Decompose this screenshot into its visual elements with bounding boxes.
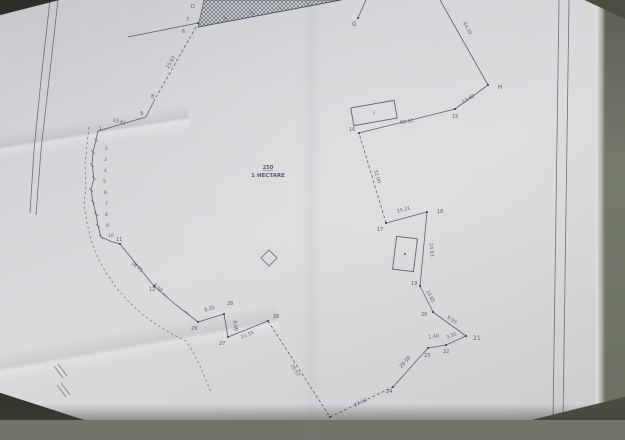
vertex-dot bbox=[385, 222, 387, 224]
vertex-dot bbox=[227, 336, 229, 338]
vertex-dot bbox=[419, 285, 421, 287]
measurement-label: 8.25 bbox=[204, 305, 216, 314]
road-dash-mark bbox=[54, 366, 63, 378]
point-label: 26 bbox=[273, 314, 279, 320]
vertex-dot bbox=[465, 335, 467, 337]
point-label: 4 bbox=[104, 168, 107, 174]
vertex-dot bbox=[487, 84, 489, 86]
point-label: 24 bbox=[386, 389, 392, 395]
road-dash-mark bbox=[57, 385, 66, 397]
vertex-dot bbox=[329, 416, 331, 418]
vertex-dot bbox=[197, 22, 199, 24]
point-label: 5 bbox=[103, 179, 106, 185]
measurement-label: 1.40 bbox=[428, 333, 440, 341]
boundary-segment bbox=[146, 99, 155, 117]
point-label: G bbox=[352, 21, 357, 28]
point-label: 16 bbox=[349, 127, 355, 133]
measurement-label: 28.57 bbox=[289, 363, 302, 378]
measurement-label: 44.20 bbox=[461, 21, 473, 36]
boundary-segment bbox=[128, 23, 198, 37]
measurement-label: 3.35 bbox=[446, 331, 458, 340]
measurement-label: 25.93 bbox=[165, 55, 177, 70]
building-mark bbox=[404, 253, 406, 255]
diamond-symbol bbox=[261, 250, 277, 266]
vertex-dot bbox=[119, 243, 121, 245]
boundary-segment bbox=[224, 314, 228, 337]
boundary-segment bbox=[359, 133, 386, 223]
building-label: I bbox=[373, 111, 376, 117]
survey-plan-drawing: ID7689GH15161718192021222324262728291112… bbox=[0, 0, 625, 420]
measurement-label: 28.58 bbox=[398, 355, 412, 369]
point-label: 9 bbox=[106, 223, 109, 229]
west-dashed-boundary bbox=[84, 127, 211, 392]
measurement-label: 58.52 bbox=[400, 118, 415, 126]
boundary-segment bbox=[268, 321, 330, 417]
point-label: 23 bbox=[424, 353, 430, 359]
measurement-label: 15.21 bbox=[396, 205, 411, 214]
west-road-inner bbox=[36, 0, 58, 215]
measurement-label: 27.58 bbox=[353, 397, 368, 408]
measurement-label: 9.06 bbox=[231, 320, 239, 332]
vertex-dot bbox=[392, 386, 394, 388]
vertex-dot bbox=[454, 108, 456, 110]
point-label: 2 bbox=[105, 146, 108, 152]
east-road-inner bbox=[563, 0, 569, 420]
boundary-segment bbox=[358, 0, 366, 18]
point-label: H bbox=[498, 84, 503, 91]
boundary-segment bbox=[198, 314, 224, 322]
vertex-dot bbox=[267, 320, 269, 322]
vertex-dot bbox=[432, 311, 434, 313]
point-label: 27 bbox=[219, 341, 225, 347]
area-label: 1 HECTARE bbox=[251, 173, 285, 179]
boundary-tick bbox=[185, 311, 189, 315]
point-label: 9 bbox=[140, 111, 143, 117]
point-label: 17 bbox=[377, 227, 383, 233]
vertex-dot bbox=[197, 321, 199, 323]
boundary-segment bbox=[386, 212, 427, 223]
point-label: 8 bbox=[105, 212, 108, 218]
vertex-dot bbox=[357, 17, 359, 19]
boundary-segment bbox=[420, 212, 427, 286]
point-label: 22 bbox=[443, 349, 449, 355]
west-road-outer bbox=[30, 0, 50, 213]
point-label: 15 bbox=[452, 114, 458, 120]
boundary-segment bbox=[393, 348, 428, 387]
point-label: 8 bbox=[151, 94, 154, 100]
point-label: 11 bbox=[116, 237, 122, 243]
vertex-dot bbox=[426, 211, 428, 213]
boundary-segment bbox=[428, 345, 446, 348]
measurement-label: 13.60 bbox=[461, 93, 476, 105]
point-label: 21 bbox=[473, 335, 481, 342]
boundary-tick bbox=[163, 293, 167, 297]
vertex-dot bbox=[358, 132, 360, 134]
point-label: 18 bbox=[437, 209, 443, 215]
point-label: 19 bbox=[411, 281, 417, 287]
road-dash-mark bbox=[61, 383, 70, 395]
point-label: 29 bbox=[191, 326, 197, 332]
boundary-segment bbox=[440, 0, 488, 85]
plot-number-label: 250 bbox=[263, 165, 274, 171]
vertex-dot bbox=[445, 344, 447, 346]
point-label: 3 bbox=[104, 157, 107, 163]
point-label: 10 bbox=[108, 233, 114, 239]
point-label: 6 bbox=[182, 29, 185, 35]
point-label: D bbox=[191, 4, 195, 10]
measurement-label: 10.85 bbox=[424, 289, 436, 304]
vertex-dot bbox=[427, 347, 429, 349]
east-road-outer bbox=[553, 0, 559, 420]
photo-of-survey-plan: ID7689GH15161718192021222324262728291112… bbox=[0, 0, 625, 420]
vertex-dot bbox=[223, 313, 225, 315]
point-label: 7 bbox=[186, 17, 189, 23]
boundary-segment bbox=[155, 27, 196, 99]
measurement-label: 15.61 bbox=[112, 117, 127, 127]
measurement-label: 9.50 bbox=[446, 315, 458, 326]
point-label: 6 bbox=[104, 190, 107, 196]
point-label: 28 bbox=[227, 301, 233, 307]
road-dash-mark bbox=[58, 364, 67, 376]
point-label: 20 bbox=[421, 312, 427, 318]
point-label: 7 bbox=[105, 201, 108, 207]
measurement-label: 24.93 bbox=[427, 243, 434, 257]
measurement-label: 16.75 bbox=[129, 261, 143, 274]
boundary-segment bbox=[120, 244, 198, 322]
point-label: 1 bbox=[99, 126, 102, 132]
